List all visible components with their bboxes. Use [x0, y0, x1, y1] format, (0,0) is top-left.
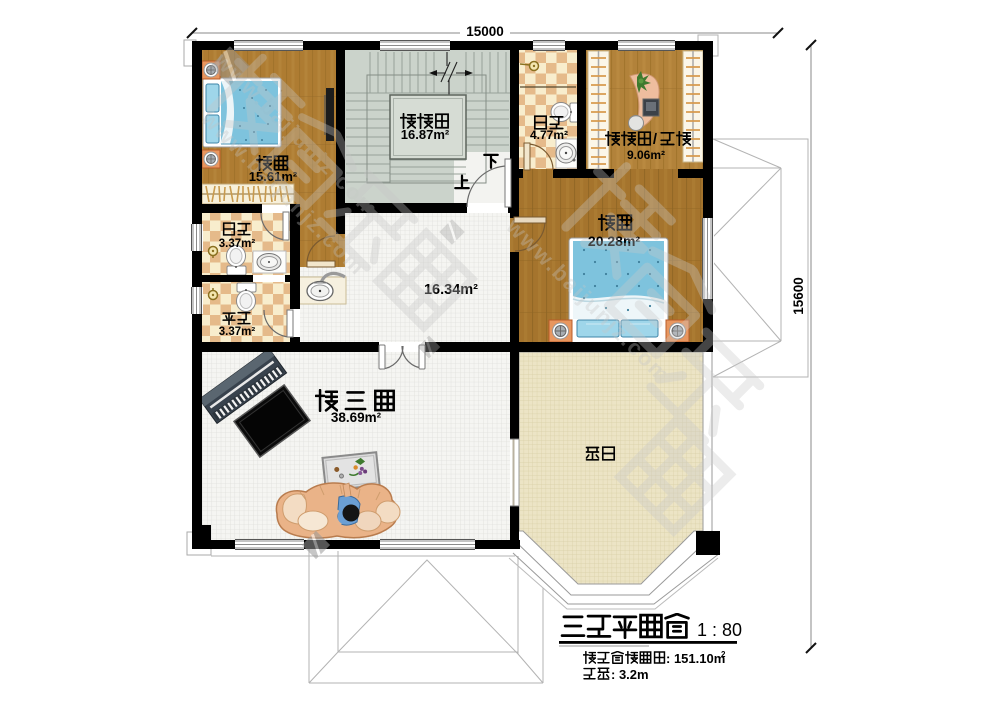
- svg-text:2: 2: [721, 650, 726, 659]
- svg-text:16.87m²: 16.87m²: [401, 127, 450, 142]
- svg-text:: 151.10m: : 151.10m: [666, 651, 725, 666]
- svg-text:4.77m²: 4.77m²: [530, 128, 568, 142]
- svg-text:9.06m²: 9.06m²: [627, 148, 665, 162]
- svg-text:15600: 15600: [791, 277, 806, 315]
- svg-text:15000: 15000: [466, 24, 504, 39]
- svg-text:38.69m²: 38.69m²: [331, 410, 382, 425]
- svg-text:3.37m²: 3.37m²: [219, 326, 256, 338]
- svg-text:3.37m²: 3.37m²: [219, 238, 256, 250]
- svg-text:1 : 80: 1 : 80: [697, 620, 742, 640]
- svg-text:: 3.2m: : 3.2m: [611, 667, 649, 682]
